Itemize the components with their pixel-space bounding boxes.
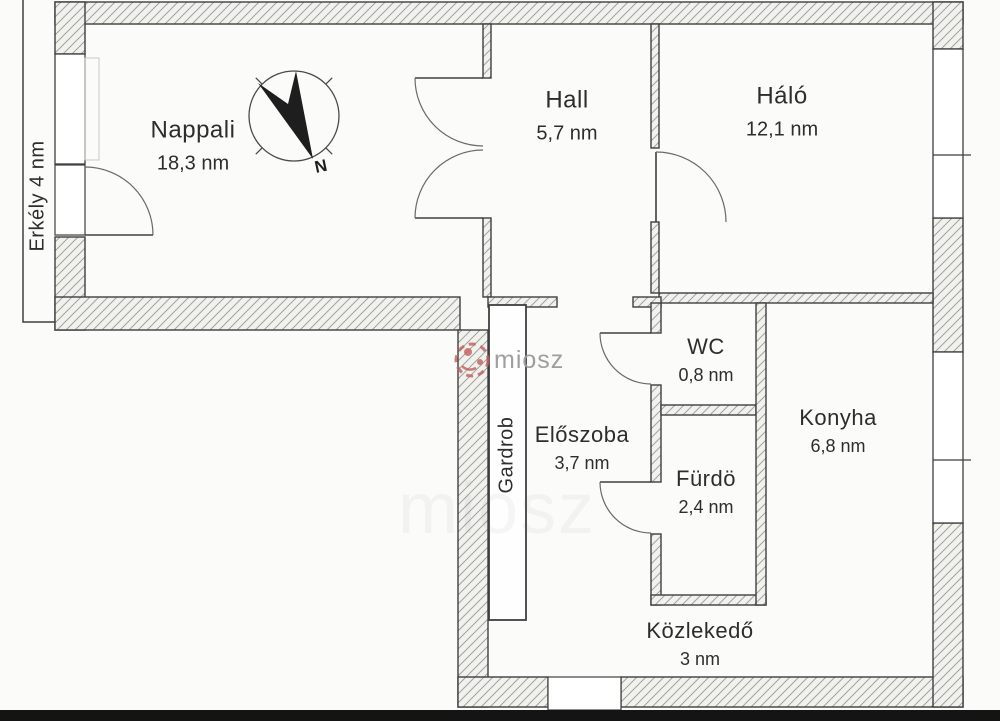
watermark-text-faint: miosz — [398, 468, 596, 550]
label-hall: Hall 5,7 nm — [536, 87, 597, 146]
room-area: 18,3 nm — [151, 152, 236, 175]
room-area: 2,4 nm — [676, 497, 736, 518]
room-area: 6,8 nm — [799, 436, 877, 457]
window-halo — [933, 49, 963, 218]
label-wc: WC 0,8 nm — [678, 334, 733, 386]
room-name: WC — [678, 334, 733, 359]
room-area: 5,7 nm — [536, 122, 597, 145]
label-erkely: Erkély 4 nm — [27, 140, 50, 251]
door-nappali-hall — [415, 78, 483, 218]
room-name: Nappali — [151, 117, 236, 145]
room-area: 3 nm — [646, 649, 753, 670]
photo-bottom-edge — [0, 710, 1000, 721]
compass-north-label: N — [313, 156, 329, 177]
door-entrance — [548, 677, 621, 710]
door-halo — [656, 152, 726, 222]
label-furdo: Fürdö 2,4 nm — [676, 466, 736, 518]
door-furdo — [600, 482, 651, 533]
room-name: Konyha — [799, 405, 877, 430]
floor-plan: N Nappali 18,3 nm Hall 5,7 nm Háló 12,1 … — [0, 0, 1000, 721]
room-name: Fürdö — [676, 466, 736, 491]
window-konyha — [933, 352, 963, 523]
door-balcony — [55, 165, 153, 235]
room-name: Előszoba — [535, 422, 630, 447]
compass-icon: N — [249, 71, 339, 177]
window-nappali — [55, 54, 85, 164]
label-halo: Háló 12,1 nm — [746, 83, 818, 142]
room-name: Háló — [746, 83, 818, 111]
label-kozlekedo: Közlekedő 3 nm — [646, 618, 753, 670]
watermark-text: miosz — [494, 346, 564, 375]
room-name: Hall — [536, 87, 597, 115]
label-eloszoba: Előszoba 3,7 nm — [535, 422, 630, 474]
room-area: 12,1 nm — [746, 118, 818, 141]
label-nappali: Nappali 18,3 nm — [151, 117, 236, 176]
room-name: Közlekedő — [646, 618, 753, 643]
door-wc — [600, 333, 651, 384]
label-konyha: Konyha 6,8 nm — [799, 405, 877, 457]
room-area: 0,8 nm — [678, 365, 733, 386]
